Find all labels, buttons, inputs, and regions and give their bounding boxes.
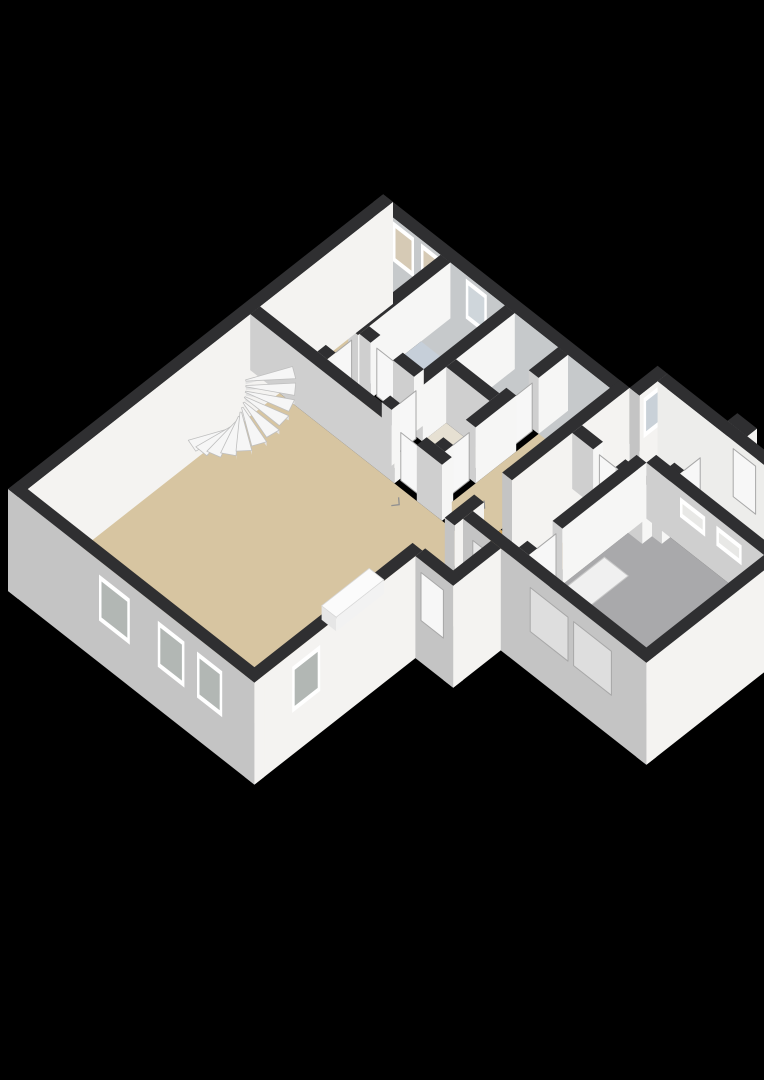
wing-se-wall-sw-face: [637, 655, 647, 765]
main-sw-wall-se-face: [254, 675, 264, 785]
living-hall-wall-se-face: [442, 457, 452, 521]
floorplan-figure: [0, 0, 764, 1080]
hall-wall-w-sw-face: [382, 402, 392, 466]
vestibule-sw-wall-se-face: [453, 578, 463, 688]
hall-wall-w-se-face: [392, 403, 400, 466]
floorplan-3d: [0, 0, 764, 1080]
